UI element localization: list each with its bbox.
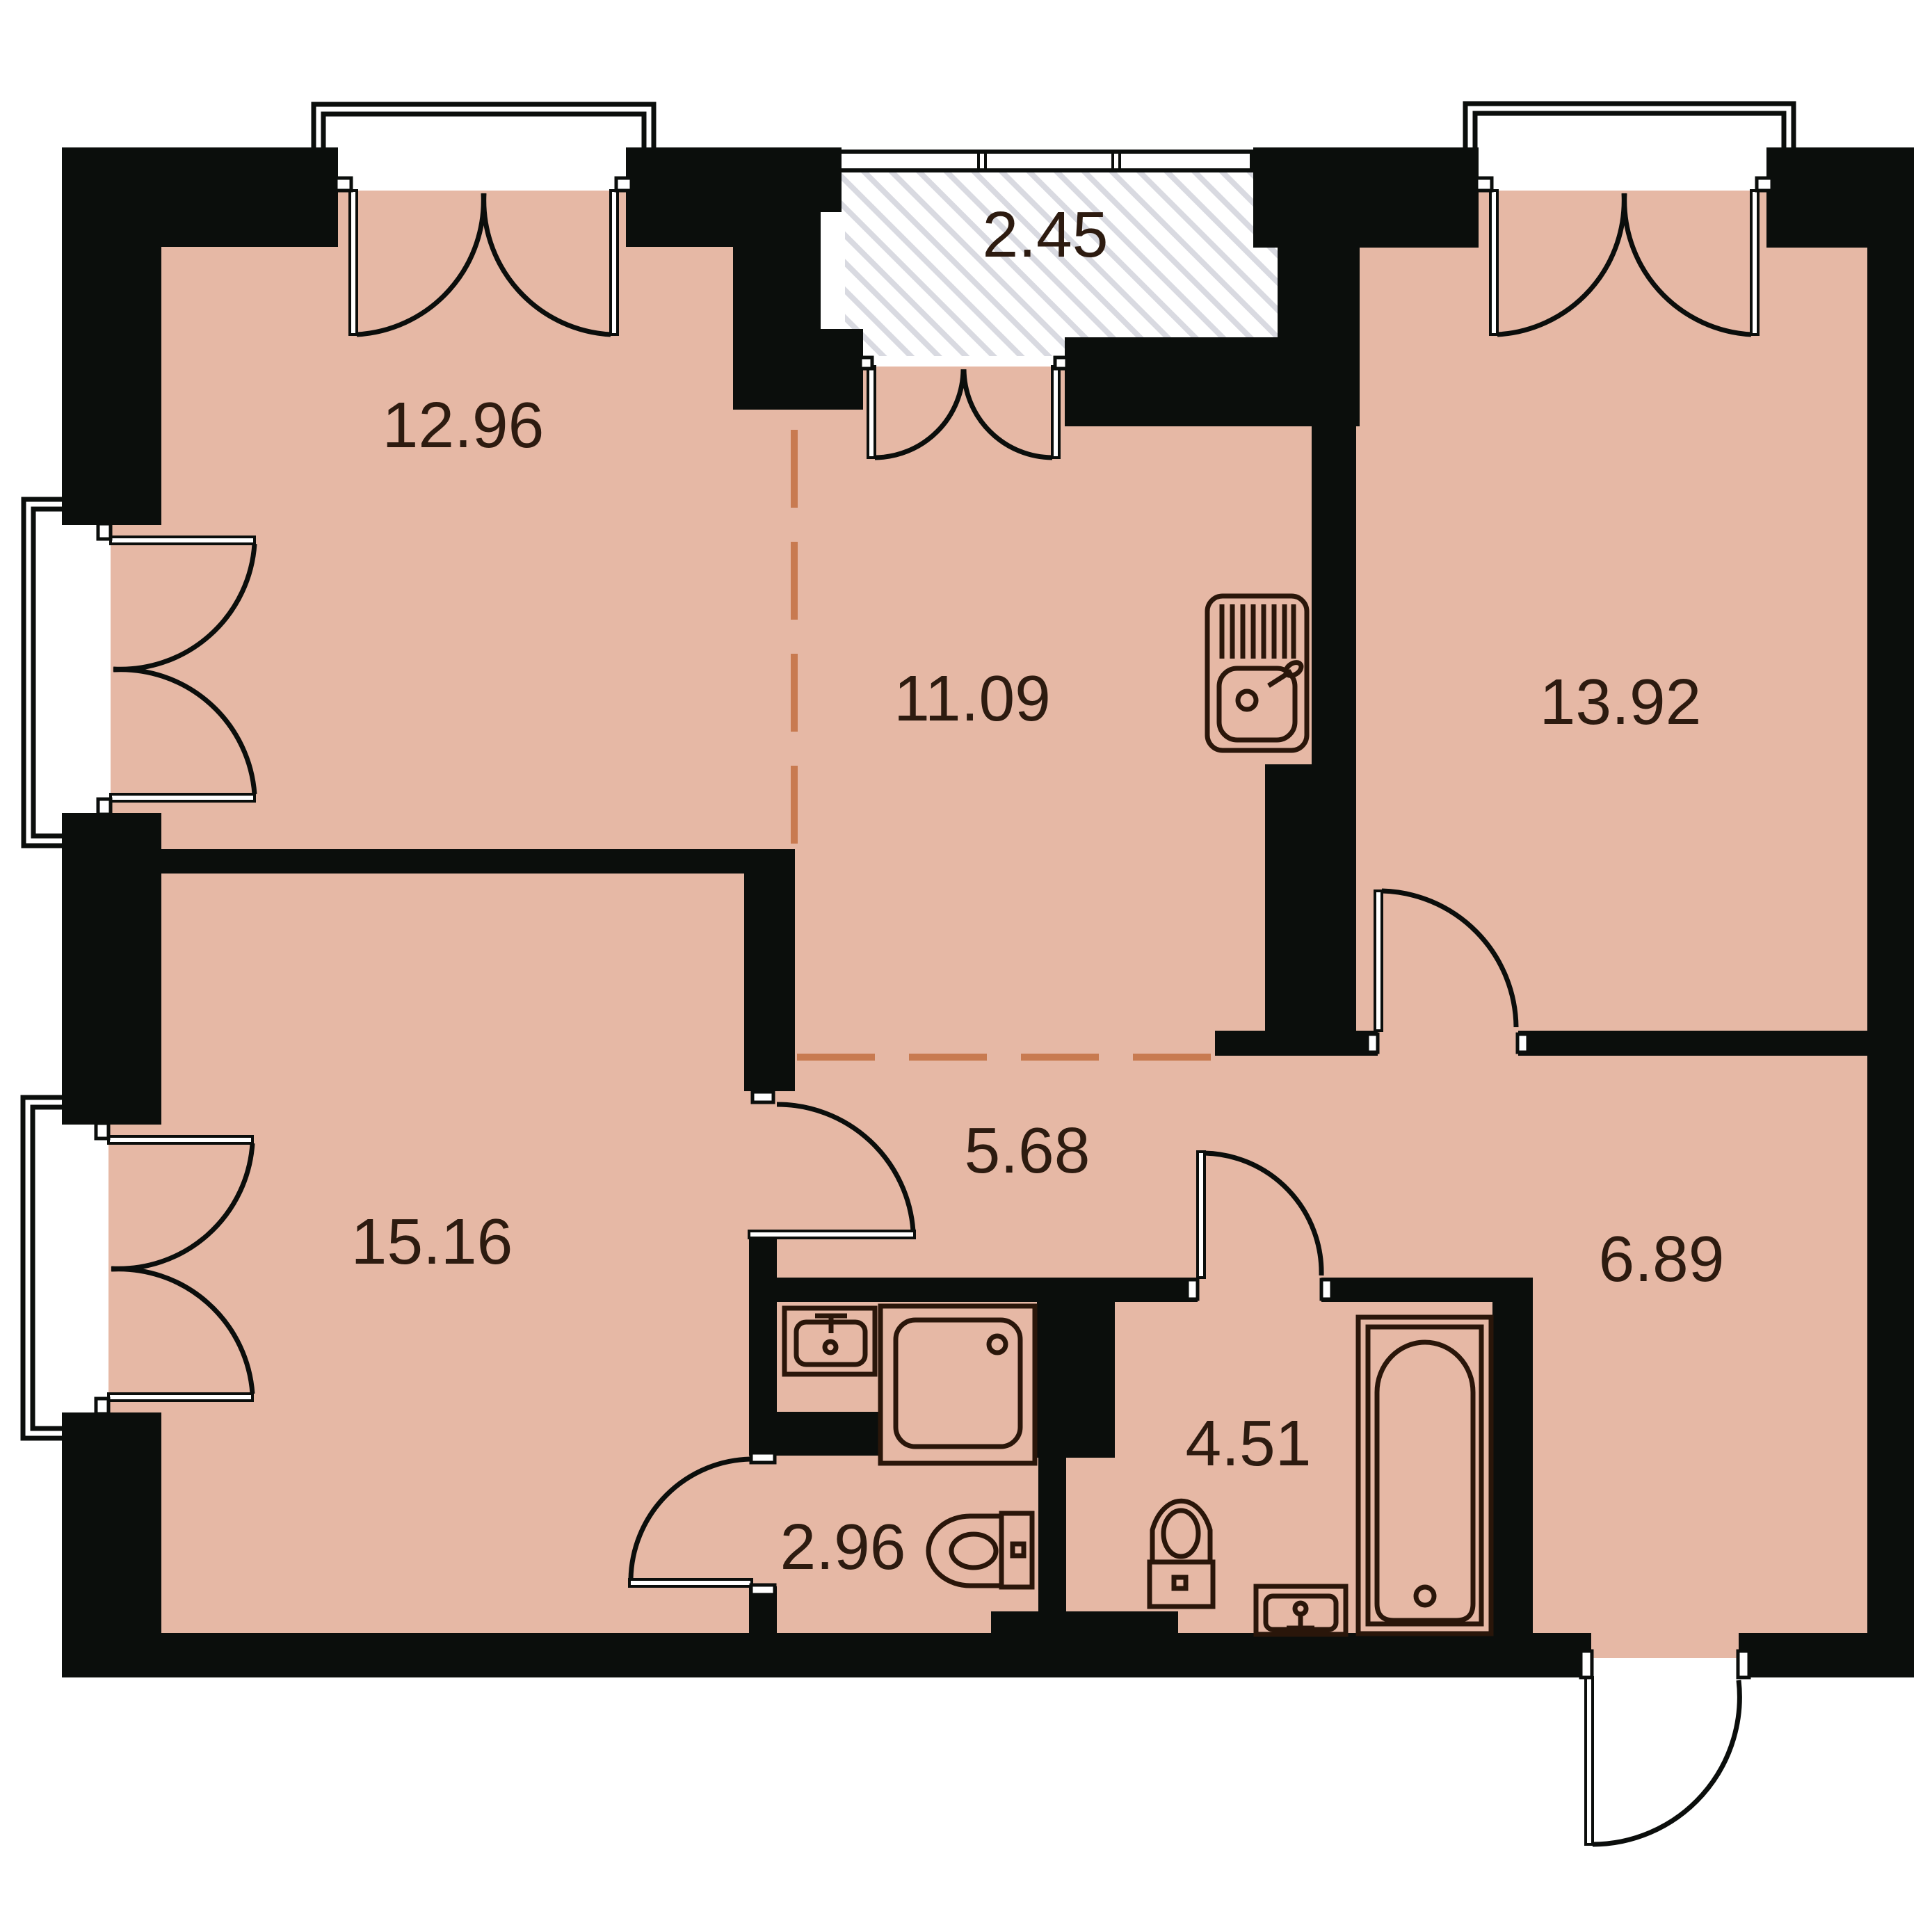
svg-text:11.09: 11.09 xyxy=(894,662,1051,734)
svg-text:6.89: 6.89 xyxy=(1598,1223,1724,1295)
svg-text:2.45: 2.45 xyxy=(982,198,1108,271)
svg-text:12.96: 12.96 xyxy=(383,389,545,461)
svg-text:15.16: 15.16 xyxy=(351,1205,513,1278)
svg-text:13.92: 13.92 xyxy=(1540,666,1702,738)
svg-text:4.51: 4.51 xyxy=(1185,1407,1311,1479)
svg-text:5.68: 5.68 xyxy=(964,1114,1090,1186)
svg-text:2.96: 2.96 xyxy=(780,1511,905,1583)
